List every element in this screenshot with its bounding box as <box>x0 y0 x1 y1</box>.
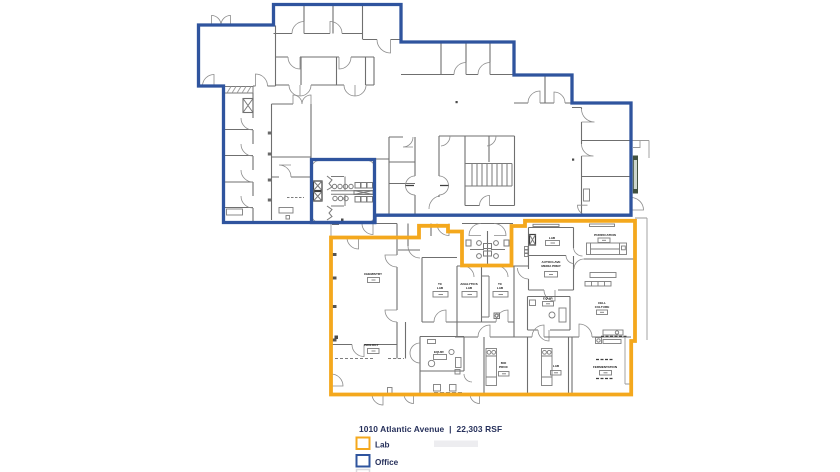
svg-text:MEDIA PREP: MEDIA PREP <box>541 264 560 268</box>
svg-text:PURIFICATION: PURIFICATION <box>594 233 617 237</box>
svg-text:EQUIP.: EQUIP. <box>434 350 444 354</box>
svg-text:CHEMISTRY: CHEMISTRY <box>364 272 383 276</box>
svg-text:1010 Atlantic Avenue | 22,30: 1010 Atlantic Avenue | 22,303 RSF <box>359 424 502 434</box>
svg-text:Office: Office <box>375 458 399 467</box>
svg-text:PROC: PROC <box>499 365 509 369</box>
svg-text:FERMENTATION: FERMENTATION <box>593 365 618 369</box>
svg-text:LAB: LAB <box>437 286 444 290</box>
svg-text:LAB: LAB <box>549 236 556 240</box>
svg-text:Lab: Lab <box>375 441 390 450</box>
svg-text:BIOLOGY: BIOLOGY <box>364 343 379 347</box>
svg-text:LAB: LAB <box>497 286 504 290</box>
svg-text:LAB: LAB <box>553 364 560 368</box>
svg-text:CULTURE: CULTURE <box>595 305 610 309</box>
svg-text:EQUIP.: EQUIP. <box>543 297 553 301</box>
svg-text:LAB: LAB <box>466 286 473 290</box>
